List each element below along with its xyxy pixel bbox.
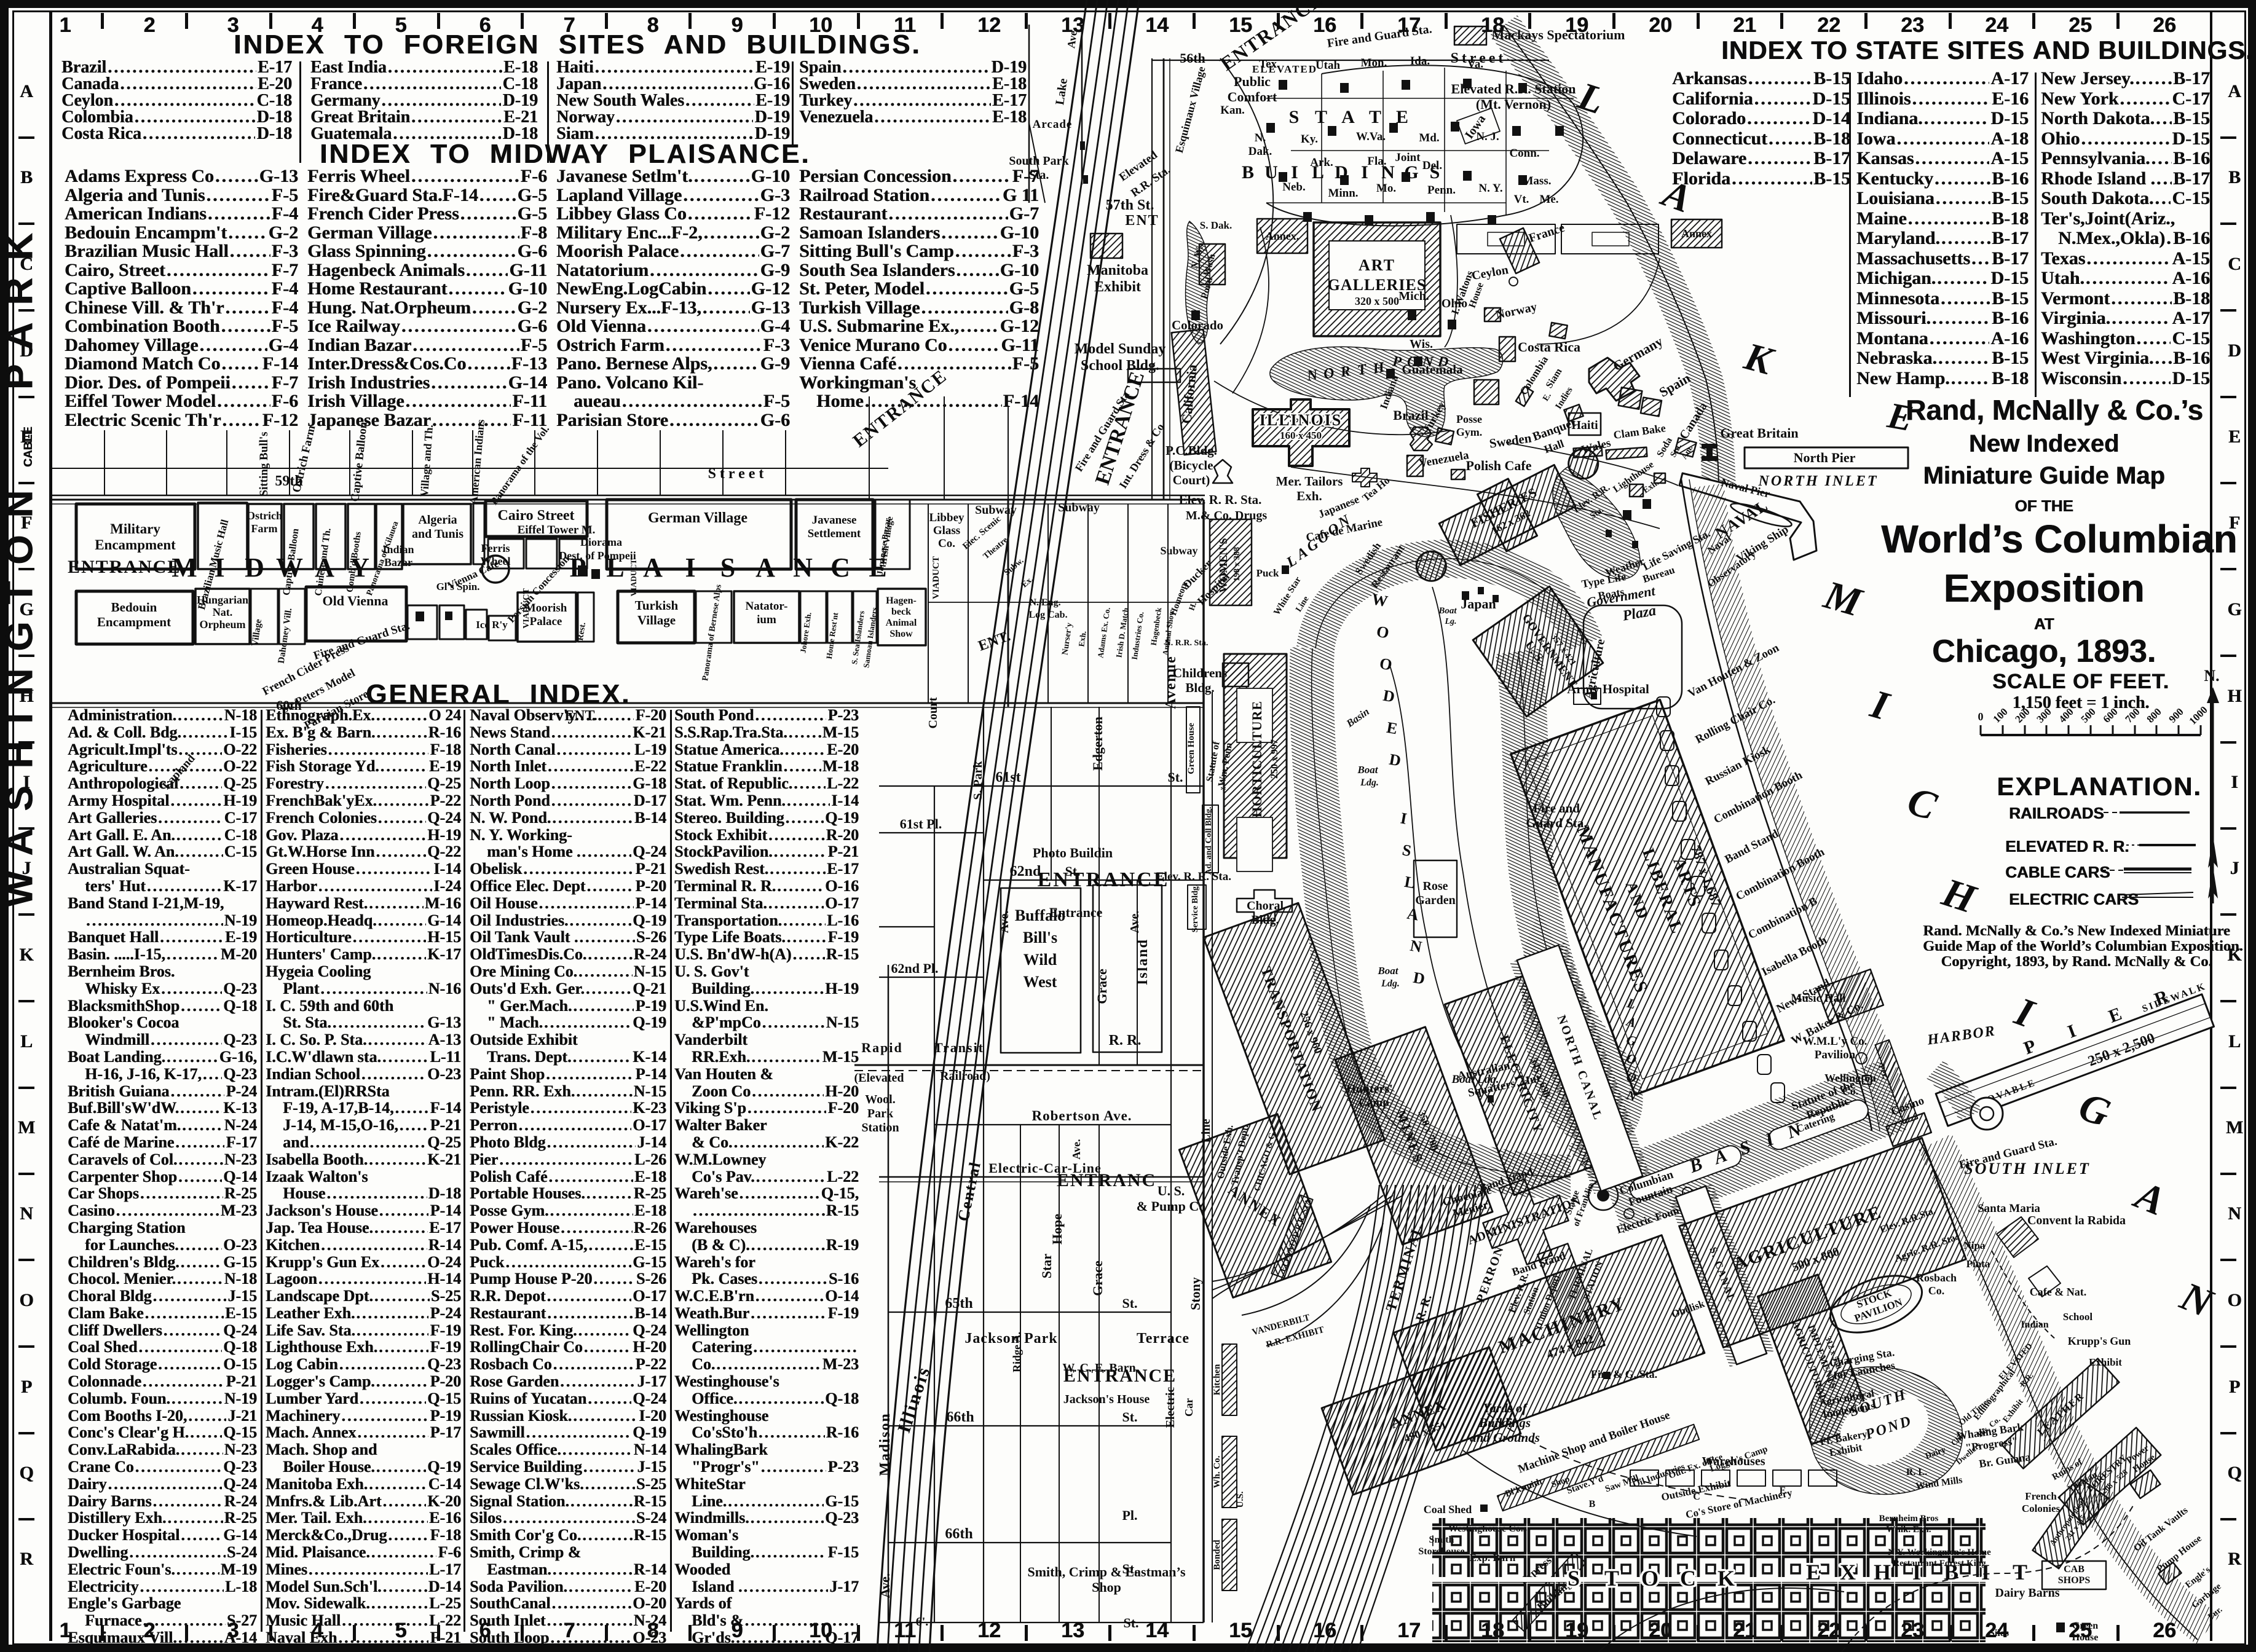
svg-text:Wool.ParkStation: Wool.ParkStation bbox=[861, 1093, 899, 1135]
svg-text:Mer. TailorsExh.: Mer. TailorsExh. bbox=[1276, 474, 1343, 503]
svg-text:A: A bbox=[1406, 905, 1421, 924]
svg-text:62nd: 62nd bbox=[1010, 863, 1041, 879]
svg-text:Ave.: Ave. bbox=[1128, 911, 1142, 934]
svg-text:Wh. Co.: Wh. Co. bbox=[1212, 1455, 1222, 1488]
svg-text:P.C.Bldg.(BicycleCourt): P.C.Bldg.(BicycleCourt) bbox=[1165, 443, 1217, 487]
svg-text:Cairo Street: Cairo Street bbox=[497, 508, 574, 524]
svg-text:Nipa: Nipa bbox=[1964, 1240, 1986, 1251]
svg-text:FerrisWheel: FerrisWheel bbox=[481, 542, 511, 567]
svg-text:66th: 66th bbox=[945, 1526, 972, 1542]
svg-text:D: D bbox=[245, 553, 264, 583]
svg-text:E: E bbox=[1780, 1485, 1786, 1496]
svg-text:Central: Central bbox=[954, 1160, 984, 1223]
svg-text:Village: Village bbox=[250, 618, 264, 647]
svg-text:U.S.: U.S. bbox=[1236, 1491, 1245, 1508]
svg-text:Pinta: Pinta bbox=[1966, 1258, 1990, 1270]
svg-text:TurkishVillage: TurkishVillage bbox=[635, 598, 679, 627]
svg-text:Conn.: Conn. bbox=[1509, 147, 1539, 160]
svg-text:American Indians: American Indians bbox=[467, 419, 487, 505]
svg-text:SOUTH INLET: SOUTH INLET bbox=[1964, 1160, 2091, 1178]
svg-text:Pump House: Pump House bbox=[2155, 1533, 2203, 1575]
svg-text:S. Park: S. Park bbox=[971, 760, 985, 800]
svg-text:D: D bbox=[1412, 969, 1427, 988]
svg-text:Ceylon: Ceylon bbox=[1471, 263, 1510, 283]
svg-text:Grace: Grace bbox=[1090, 1261, 1105, 1296]
svg-text:N. R.R. Sta.: N. R.R. Sta. bbox=[1165, 639, 1209, 648]
svg-text:Va.: Va. bbox=[1467, 58, 1483, 71]
svg-text:ENTRANCE: ENTRANCE bbox=[849, 366, 951, 452]
svg-text:Hagen-beckAnimalShow: Hagen-beckAnimalShow bbox=[886, 596, 917, 639]
svg-text:Mich.: Mich. bbox=[1398, 289, 1429, 303]
svg-text:C: C bbox=[830, 553, 850, 583]
svg-text:Avenue: Avenue bbox=[1163, 655, 1179, 709]
svg-text:Dak.: Dak. bbox=[1248, 145, 1272, 158]
svg-text:B: B bbox=[1242, 162, 1254, 183]
svg-text:N.: N. bbox=[2204, 667, 2219, 685]
svg-text:Electric: Electric bbox=[1164, 1387, 1177, 1428]
svg-text:(Elevated: (Elevated bbox=[854, 1071, 904, 1085]
svg-text:Music Hall: Music Hall bbox=[1791, 992, 1845, 1005]
svg-text:Ad. and Coll Bldg.: Ad. and Coll Bldg. bbox=[1204, 807, 1213, 875]
svg-text:56th: 56th bbox=[1180, 50, 1205, 66]
svg-text:K: K bbox=[1718, 1566, 1735, 1591]
svg-text:Smith, Crimp & Eastman’sShop: Smith, Crimp & Eastman’sShop bbox=[1027, 1564, 1186, 1595]
svg-text:250 x 997: 250 x 997 bbox=[1269, 739, 1280, 779]
svg-text:Silos: Silos bbox=[1989, 1628, 2009, 1638]
svg-text:Madison: Madison bbox=[877, 1412, 893, 1476]
svg-text:Engle's: Engle's bbox=[2183, 1565, 2212, 1590]
svg-text:Panorama of the Vol.: Panorama of the Vol. bbox=[488, 423, 551, 507]
svg-text:Subway: Subway bbox=[1160, 545, 1197, 557]
svg-text:Warehouses: Warehouses bbox=[1702, 1455, 1765, 1468]
svg-text:Jackson's House: Jackson's House bbox=[1063, 1393, 1150, 1406]
svg-text:Lake: Lake bbox=[1053, 77, 1070, 106]
svg-text:Lg.: Lg. bbox=[1444, 617, 1456, 626]
svg-text:Natator-ium: Natator-ium bbox=[746, 600, 788, 626]
svg-text:61st: 61st bbox=[995, 769, 1020, 785]
svg-text:Vt.: Vt. bbox=[1514, 193, 1529, 206]
svg-text:D: D bbox=[1388, 750, 1403, 770]
svg-text:Santa Maria: Santa Maria bbox=[1978, 1202, 2040, 1215]
svg-text:Island: Island bbox=[1135, 938, 1151, 985]
svg-text:*: * bbox=[1220, 784, 1226, 797]
svg-text:T: T bbox=[1369, 107, 1381, 127]
svg-text:Green House: Green House bbox=[1186, 723, 1196, 774]
svg-text:Ave: Ave bbox=[1065, 30, 1079, 49]
svg-text:CABSHOPS: CABSHOPS bbox=[2058, 1564, 2091, 1586]
svg-text:Indian: Indian bbox=[2021, 1320, 2048, 1330]
svg-text:Kan.: Kan. bbox=[1220, 104, 1245, 117]
svg-text:E: E bbox=[1385, 718, 1398, 738]
svg-text:Rapid: Rapid bbox=[861, 1040, 902, 1055]
svg-text:ART: ART bbox=[1359, 256, 1395, 274]
svg-text:I: I bbox=[214, 553, 224, 583]
svg-text:Neb.: Neb. bbox=[1282, 181, 1305, 194]
svg-text:Ave.: Ave. bbox=[877, 1573, 893, 1599]
svg-text:Ida.: Ida. bbox=[1410, 55, 1430, 68]
svg-text:T: T bbox=[2013, 1560, 2027, 1584]
svg-text:O: O bbox=[1641, 1566, 1658, 1591]
svg-text:Puck: Puck bbox=[1256, 567, 1279, 579]
svg-text:N: N bbox=[2174, 1273, 2220, 1327]
svg-text:Edgerton: Edgerton bbox=[1090, 717, 1105, 771]
svg-text:Convent la Rabida: Convent la Rabida bbox=[2027, 1214, 2126, 1227]
svg-text:OstrichFarm: OstrichFarm bbox=[247, 509, 282, 535]
svg-text:Stony: Stony bbox=[1188, 1277, 1203, 1310]
svg-text:Elev. R. R. Sta.: Elev. R. R. Sta. bbox=[1179, 492, 1262, 507]
svg-text:A: A bbox=[315, 553, 334, 583]
svg-text:HungarianNat.Orpheum: HungarianNat.Orpheum bbox=[197, 594, 248, 631]
svg-text:Adams Ex. Co.: Adams Ex. Co. bbox=[1095, 607, 1111, 658]
svg-text:Hope: Hope bbox=[1049, 1214, 1065, 1245]
svg-text:Ark.: Ark. bbox=[1310, 156, 1333, 169]
svg-text:Ostrich Farm: Ostrich Farm bbox=[290, 424, 318, 494]
svg-text:St.: St. bbox=[1122, 1296, 1137, 1311]
svg-text:GreenHouse: GreenHouse bbox=[2072, 1621, 2099, 1643]
svg-text:Mo.: Mo. bbox=[1376, 182, 1396, 195]
svg-text:T: T bbox=[1604, 1566, 1619, 1591]
svg-text:L: L bbox=[1572, 73, 1609, 122]
svg-text:I: I bbox=[1399, 809, 1408, 827]
svg-text:ENTRANCE: ENTRANCE bbox=[1063, 1366, 1177, 1386]
svg-text:Polish Cafe: Polish Cafe bbox=[1466, 458, 1532, 473]
svg-text:W: W bbox=[276, 553, 303, 583]
svg-text:I: I bbox=[685, 553, 695, 583]
svg-text:VIADUCT: VIADUCT bbox=[522, 588, 531, 629]
svg-text:Subw.: Subw. bbox=[1003, 556, 1025, 578]
svg-text:Boat: Boat bbox=[1377, 965, 1398, 977]
svg-text:Terrace: Terrace bbox=[1137, 1331, 1189, 1347]
svg-text:T: T bbox=[1315, 107, 1327, 127]
svg-text:N. Y.: N. Y. bbox=[1478, 182, 1502, 195]
svg-text:Me.: Me. bbox=[1539, 193, 1558, 206]
svg-text:BedouinEncampment: BedouinEncampment bbox=[97, 600, 171, 629]
svg-text:Y: Y bbox=[350, 553, 369, 583]
svg-text:H: H bbox=[1874, 1560, 1891, 1584]
svg-text:Boat: Boat bbox=[1438, 606, 1457, 616]
svg-text:A: A bbox=[643, 553, 663, 583]
svg-text:Transit: Transit bbox=[934, 1040, 984, 1055]
svg-text:160 x 450: 160 x 450 bbox=[1280, 430, 1322, 441]
svg-text:Old Vienna: Old Vienna bbox=[323, 593, 388, 608]
svg-text:Penn.: Penn. bbox=[1427, 184, 1456, 197]
svg-text:1000: 1000 bbox=[2187, 704, 2209, 726]
svg-text:Arcade: Arcade bbox=[1033, 118, 1073, 131]
svg-text:Costa Rica: Costa Rica bbox=[1518, 339, 1580, 355]
svg-text:57th St.: 57th St. bbox=[1106, 197, 1154, 213]
svg-text:K: K bbox=[1740, 334, 1780, 383]
svg-text:A: A bbox=[755, 553, 775, 583]
svg-text:S: S bbox=[720, 553, 735, 583]
svg-text:Md.: Md. bbox=[1419, 132, 1439, 144]
svg-text:N: N bbox=[793, 553, 813, 583]
svg-text:M: M bbox=[1819, 572, 1868, 626]
svg-text:Nurser'y: Nurser'y bbox=[1060, 622, 1074, 655]
svg-text:Guatemala: Guatemala bbox=[1402, 362, 1463, 377]
svg-text:Village and Th.: Village and Th. bbox=[418, 424, 435, 497]
svg-text:Wis.: Wis. bbox=[1410, 337, 1433, 351]
svg-text:Mon.: Mon. bbox=[1361, 57, 1387, 69]
svg-text:Photo Buildin: Photo Buildin bbox=[1033, 845, 1113, 860]
svg-text:Gl's Spin.: Gl's Spin. bbox=[436, 581, 480, 592]
svg-text:Fire & G. Sta.: Fire & G. Sta. bbox=[1591, 1368, 1657, 1380]
svg-text:I: I bbox=[1291, 162, 1298, 183]
svg-text:Rest.: Rest. bbox=[576, 622, 588, 642]
svg-text:Ave.: Ave. bbox=[998, 911, 1011, 934]
svg-text:VIADUCT: VIADUCT bbox=[629, 559, 638, 596]
svg-text:Bonded: Bonded bbox=[1212, 1540, 1222, 1570]
svg-text:C: C bbox=[1693, 1492, 1700, 1502]
svg-text:School: School bbox=[2063, 1311, 2092, 1323]
svg-text:Dairy Barns: Dairy Barns bbox=[1995, 1586, 2060, 1600]
svg-text:Hagenbeck: Hagenbeck bbox=[1149, 607, 1164, 646]
svg-text:ILLINOIS: ILLINOIS bbox=[1260, 411, 1343, 429]
svg-text:Fire and Guard Sta.: Fire and Guard Sta. bbox=[1327, 22, 1433, 50]
svg-text:HARBOR: HARBOR bbox=[1926, 1023, 1997, 1048]
svg-text:Diorama: Diorama bbox=[580, 536, 622, 548]
svg-text:Exh.: Exh. bbox=[1076, 631, 1087, 647]
svg-text:Service Bldg.: Service Bldg. bbox=[1191, 884, 1200, 933]
svg-text:E.: E. bbox=[1541, 391, 1553, 403]
svg-text:Esquimaux Village: Esquimaux Village bbox=[1173, 65, 1208, 154]
svg-text:Panorama of Bernese Alps: Panorama of Bernese Alps bbox=[701, 584, 724, 682]
svg-text:U: U bbox=[1264, 162, 1278, 183]
svg-text:R. R.: R. R. bbox=[1109, 1032, 1142, 1048]
svg-text:MilitaryEncampment: MilitaryEncampment bbox=[95, 521, 176, 553]
svg-text:P: P bbox=[1391, 353, 1402, 370]
svg-text:ENT: ENT bbox=[1125, 213, 1159, 229]
svg-text:Illinois: Illinois bbox=[894, 1364, 934, 1436]
svg-text:Venezuela: Venezuela bbox=[1418, 449, 1470, 470]
svg-text:Grace: Grace bbox=[1094, 969, 1110, 1004]
svg-text:320 x 500: 320 x 500 bbox=[1355, 295, 1399, 307]
svg-text:Isabella Booth: Isabella Booth bbox=[1759, 934, 1829, 979]
svg-text:Captive Balloon: Captive Balloon bbox=[349, 421, 370, 502]
svg-text:G: G bbox=[1404, 162, 1418, 183]
svg-text:A: A bbox=[2127, 1171, 2171, 1224]
svg-text:N.: N. bbox=[1255, 132, 1266, 144]
svg-text:E: E bbox=[1396, 107, 1408, 127]
svg-text:B: B bbox=[1589, 1499, 1596, 1509]
svg-text:Utah: Utah bbox=[1315, 59, 1341, 72]
svg-text:Tex.: Tex. bbox=[1259, 58, 1280, 71]
svg-text:Sitting Bull's: Sitting Bull's bbox=[258, 431, 270, 496]
svg-text:South ParkSta.: South ParkSta. bbox=[1009, 154, 1069, 182]
svg-text:I: I bbox=[1866, 681, 1895, 729]
svg-text:Krupp's Gun: Krupp's Gun bbox=[2068, 1335, 2131, 1347]
svg-text:JavaneseSettlement: JavaneseSettlement bbox=[808, 514, 861, 540]
svg-text:62nd Pl.: 62nd Pl. bbox=[891, 961, 938, 976]
svg-text:Algeriaand Tunis: Algeriaand Tunis bbox=[412, 513, 463, 541]
svg-text:A: A bbox=[1341, 107, 1355, 127]
svg-text:Annex.: Annex. bbox=[1266, 230, 1300, 242]
svg-text:D: D bbox=[1382, 686, 1397, 706]
svg-text:Ldg.: Ldg. bbox=[1381, 978, 1400, 989]
svg-text:FrenchColonies: FrenchColonies bbox=[2022, 1490, 2061, 1514]
svg-text:Brazil: Brazil bbox=[1393, 407, 1428, 423]
svg-text:Industries Co.: Industries Co. bbox=[1130, 611, 1146, 660]
svg-text:Fla.: Fla. bbox=[1367, 155, 1386, 168]
svg-text:H: H bbox=[1936, 870, 1982, 922]
svg-text:Minn.: Minn. bbox=[1328, 187, 1358, 200]
svg-text:LibbeyGlassCo.: LibbeyGlassCo. bbox=[929, 511, 964, 550]
svg-text:Clam Bake: Clam Bake bbox=[1612, 422, 1666, 441]
svg-text:E: E bbox=[1806, 1560, 1821, 1584]
svg-text:Sweden: Sweden bbox=[1488, 430, 1532, 450]
svg-text:S: S bbox=[1401, 841, 1413, 860]
svg-text:S: S bbox=[1289, 107, 1300, 127]
svg-text:Pl.: Pl. bbox=[1122, 1508, 1137, 1523]
svg-text:VIADUCT: VIADUCT bbox=[931, 556, 941, 599]
svg-text:D: D bbox=[1335, 162, 1348, 183]
svg-text:65th: 65th bbox=[945, 1296, 972, 1312]
svg-text:Entrance: Entrance bbox=[1049, 905, 1103, 920]
svg-text:Ldg.: Ldg. bbox=[1360, 777, 1379, 788]
svg-text:Ky.: Ky. bbox=[1301, 133, 1318, 146]
svg-text:Band Stand: Band Stand bbox=[1722, 827, 1781, 867]
svg-text:I: I bbox=[2009, 989, 2041, 1037]
svg-text:Del.: Del. bbox=[1422, 159, 1442, 172]
svg-text:198 x 388: 198 x 388 bbox=[1233, 547, 1242, 581]
svg-text:RoseGarden: RoseGarden bbox=[1415, 879, 1456, 907]
svg-text:X: X bbox=[1840, 1560, 1856, 1584]
svg-text:Annex: Annex bbox=[1681, 227, 1712, 240]
svg-text:Basin: Basin bbox=[1344, 706, 1371, 730]
svg-text:NORTH INLET: NORTH INLET bbox=[1758, 473, 1879, 489]
svg-text:C: C bbox=[1902, 778, 1942, 829]
svg-text:ENTRANCE: ENTRANCE bbox=[68, 557, 181, 577]
svg-text:Robertson Ave.: Robertson Ave. bbox=[1031, 1108, 1132, 1123]
svg-text:Mass.: Mass. bbox=[1523, 175, 1552, 187]
svg-text:L: L bbox=[606, 553, 624, 583]
svg-text:North Pier: North Pier bbox=[1794, 450, 1856, 465]
svg-text:Norway: Norway bbox=[1494, 300, 1538, 322]
svg-text:S. Dak.: S. Dak. bbox=[1200, 219, 1232, 231]
svg-text:Eiffel Tower M.: Eiffel Tower M. bbox=[518, 524, 596, 537]
svg-text:St.: St. bbox=[1122, 1409, 1137, 1425]
svg-text:PosseGym.: PosseGym. bbox=[1456, 413, 1483, 438]
svg-text:Ridge A.: Ridge A. bbox=[1011, 1332, 1023, 1372]
svg-text:C: C bbox=[1680, 1566, 1696, 1591]
svg-text:Ice R'y: Ice R'y bbox=[476, 619, 508, 631]
svg-text:HORTICULTURE: HORTICULTURE bbox=[1249, 701, 1264, 817]
svg-text:Elev. R. R. Sta.: Elev. R. R. Sta. bbox=[1156, 870, 1231, 883]
svg-text:ChildrensBldg.: ChildrensBldg. bbox=[1173, 666, 1227, 695]
svg-text:Army Hospital: Army Hospital bbox=[1567, 682, 1649, 696]
svg-text:French Cider Press: French Cider Press bbox=[261, 642, 352, 698]
svg-text:St.: St. bbox=[1167, 769, 1183, 785]
svg-text:W: W bbox=[1370, 590, 1389, 610]
svg-text:Coal Shed: Coal Shed bbox=[1424, 1503, 1472, 1516]
svg-text:0: 0 bbox=[1978, 710, 1984, 723]
svg-text:ENTRANCE: ENTRANCE bbox=[1038, 868, 1170, 891]
svg-text:6'.: 6'. bbox=[916, 1615, 929, 1629]
svg-text:G: G bbox=[2073, 1084, 2116, 1136]
svg-text:Ohio: Ohio bbox=[1442, 297, 1467, 310]
svg-text:S: S bbox=[1568, 1566, 1580, 1591]
svg-text:Street: Street bbox=[708, 466, 768, 482]
svg-text:66th: 66th bbox=[946, 1409, 974, 1425]
svg-text:O: O bbox=[1375, 623, 1390, 642]
svg-text:W.Va.: W.Va. bbox=[1356, 130, 1386, 143]
svg-text:Car: Car bbox=[1183, 1398, 1195, 1417]
svg-text:Boat: Boat bbox=[1357, 764, 1378, 776]
svg-text:Star: Star bbox=[1039, 1254, 1054, 1279]
svg-text:ENTRANC: ENTRANC bbox=[1057, 1170, 1156, 1190]
svg-text:Cafe & Nat.: Cafe & Nat. bbox=[2030, 1286, 2086, 1298]
svg-text:61st Pl.: 61st Pl. bbox=[900, 816, 942, 832]
svg-text:St.: St. bbox=[1123, 1615, 1138, 1630]
svg-text:Joint: Joint bbox=[1395, 151, 1421, 164]
svg-text:Siam: Siam bbox=[1544, 366, 1564, 390]
svg-text:L: L bbox=[1403, 873, 1416, 892]
svg-text:Ave.: Ave. bbox=[1070, 1139, 1083, 1159]
svg-text:Kitchen: Kitchen bbox=[1212, 1364, 1222, 1395]
svg-text:N: N bbox=[1409, 937, 1424, 956]
svg-text:Railroad): Railroad) bbox=[940, 1069, 990, 1083]
svg-text:MoorishPalace: MoorishPalace bbox=[525, 602, 567, 628]
svg-text:German Village: German Village bbox=[648, 510, 747, 526]
svg-text:M: M bbox=[172, 553, 197, 583]
svg-text:R. L.: R. L. bbox=[1906, 1467, 1927, 1477]
svg-text:ManitobaExhibit: ManitobaExhibit bbox=[1087, 262, 1148, 295]
